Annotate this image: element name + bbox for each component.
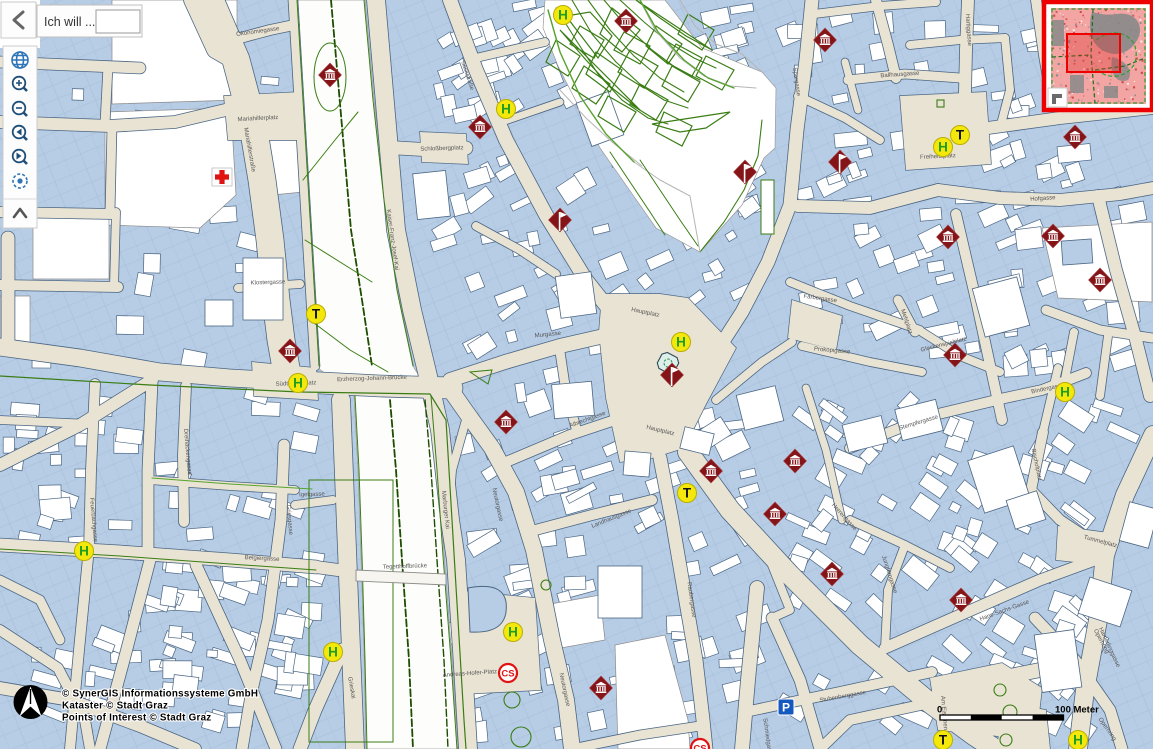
svg-text:T: T — [683, 486, 692, 501]
svg-text:P: P — [782, 701, 790, 715]
svg-text:Kataster © Stadt Graz: Kataster © Stadt Graz — [62, 701, 168, 712]
svg-text:© SynerGIS Informationssysteme: © SynerGIS Informationssysteme GmbH — [62, 689, 258, 700]
svg-text:100 Meter: 100 Meter — [1055, 705, 1099, 716]
svg-text:Ich will ...: Ich will ... — [44, 15, 95, 29]
svg-text:H: H — [328, 645, 338, 660]
svg-text:T: T — [956, 128, 965, 143]
svg-text:H: H — [508, 625, 518, 640]
svg-text:H: H — [501, 102, 511, 117]
svg-text:Igelgasse: Igelgasse — [299, 492, 326, 499]
svg-text:CS: CS — [501, 669, 514, 680]
svg-text:0: 0 — [937, 705, 942, 716]
svg-text:H: H — [293, 376, 303, 391]
svg-text:H: H — [558, 8, 568, 23]
svg-text:H: H — [79, 544, 89, 559]
svg-text:H: H — [1060, 385, 1070, 400]
svg-text:T: T — [312, 307, 321, 322]
svg-text:CS: CS — [693, 744, 706, 749]
svg-text:H: H — [1073, 733, 1083, 748]
svg-text:H: H — [676, 335, 686, 350]
svg-text:H: H — [938, 140, 948, 155]
svg-text:T: T — [939, 733, 948, 748]
svg-text:Points of Interest © Stadt Gra: Points of Interest © Stadt Graz — [62, 713, 211, 724]
svg-text:Klostergasse: Klostergasse — [251, 279, 287, 286]
